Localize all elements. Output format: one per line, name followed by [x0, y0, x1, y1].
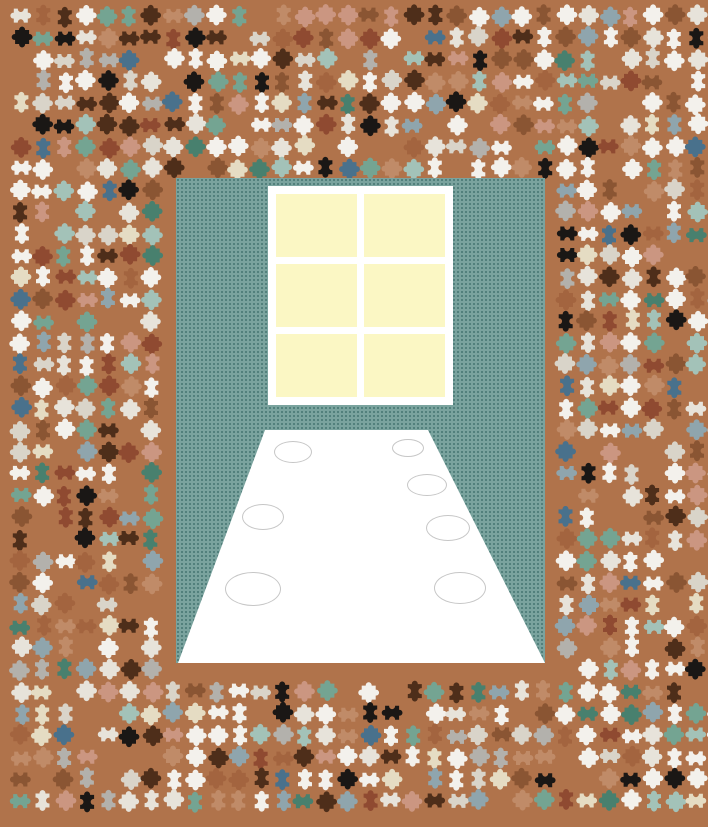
- puzzle-piece[interactable]: [490, 769, 511, 790]
- puzzle-piece[interactable]: [690, 288, 704, 309]
- puzzle-piece[interactable]: [57, 658, 71, 679]
- puzzle-piece[interactable]: [604, 659, 618, 680]
- puzzle-piece[interactable]: [163, 137, 184, 158]
- puzzle-piece[interactable]: [143, 551, 164, 572]
- puzzle-piece[interactable]: [15, 223, 29, 244]
- puzzle-piece[interactable]: [124, 268, 138, 289]
- puzzle-piece[interactable]: [185, 703, 206, 724]
- puzzle-piece[interactable]: [57, 355, 71, 376]
- puzzle-piece[interactable]: [316, 72, 337, 93]
- puzzle-piece[interactable]: [668, 748, 682, 769]
- puzzle-piece[interactable]: [600, 728, 621, 742]
- puzzle-piece[interactable]: [472, 768, 486, 789]
- puzzle-piece[interactable]: [667, 201, 681, 222]
- puzzle-piece[interactable]: [666, 268, 687, 289]
- puzzle-piece[interactable]: [140, 311, 161, 332]
- puzzle-piece[interactable]: [689, 593, 703, 614]
- puzzle-piece[interactable]: [272, 118, 293, 132]
- puzzle-piece[interactable]: [404, 51, 425, 65]
- puzzle-piece[interactable]: [143, 725, 164, 746]
- puzzle-piece[interactable]: [446, 139, 467, 153]
- puzzle-piece[interactable]: [425, 30, 446, 44]
- puzzle-piece[interactable]: [15, 704, 29, 725]
- puzzle-piece[interactable]: [492, 28, 513, 49]
- puzzle-piece[interactable]: [622, 729, 643, 743]
- puzzle-piece[interactable]: [99, 53, 120, 67]
- puzzle-piece[interactable]: [11, 137, 32, 158]
- puzzle-piece[interactable]: [557, 528, 578, 549]
- puzzle-piece[interactable]: [10, 550, 31, 571]
- puzzle-piece[interactable]: [492, 727, 513, 741]
- puzzle-piece[interactable]: [207, 157, 228, 178]
- puzzle-piece[interactable]: [255, 768, 269, 789]
- puzzle-piece[interactable]: [381, 93, 402, 114]
- puzzle-piece[interactable]: [77, 575, 98, 589]
- puzzle-piece[interactable]: [600, 76, 621, 90]
- puzzle-piece[interactable]: [577, 707, 598, 721]
- puzzle-piece[interactable]: [686, 530, 707, 551]
- puzzle-piece[interactable]: [273, 724, 294, 745]
- puzzle-piece[interactable]: [647, 309, 661, 330]
- puzzle-piece[interactable]: [275, 72, 289, 93]
- puzzle-piece[interactable]: [119, 116, 140, 137]
- puzzle-piece[interactable]: [576, 354, 597, 375]
- puzzle-piece[interactable]: [142, 574, 163, 595]
- puzzle-piece[interactable]: [621, 71, 642, 92]
- puzzle-piece[interactable]: [686, 228, 707, 242]
- puzzle-piece[interactable]: [55, 96, 76, 110]
- puzzle-piece[interactable]: [600, 332, 621, 353]
- puzzle-piece[interactable]: [557, 577, 578, 591]
- puzzle-piece[interactable]: [448, 794, 469, 808]
- puzzle-piece[interactable]: [121, 376, 142, 397]
- puzzle-piece[interactable]: [9, 660, 30, 681]
- puzzle-piece[interactable]: [76, 485, 97, 506]
- puzzle-piece[interactable]: [295, 7, 316, 28]
- puzzle-piece[interactable]: [164, 117, 185, 131]
- puzzle-piece[interactable]: [55, 32, 76, 46]
- puzzle-piece[interactable]: [77, 375, 98, 396]
- puzzle-piece[interactable]: [468, 26, 489, 47]
- puzzle-piece[interactable]: [560, 268, 574, 289]
- puzzle-piece[interactable]: [56, 554, 77, 568]
- puzzle-piece[interactable]: [556, 184, 577, 198]
- puzzle-piece[interactable]: [163, 728, 184, 742]
- puzzle-piece[interactable]: [647, 159, 661, 180]
- puzzle-piece[interactable]: [119, 92, 140, 113]
- puzzle-piece[interactable]: [166, 29, 180, 50]
- puzzle-piece[interactable]: [622, 247, 643, 268]
- puzzle-piece[interactable]: [384, 726, 398, 747]
- puzzle-piece[interactable]: [275, 769, 289, 790]
- puzzle-piece[interactable]: [75, 527, 96, 548]
- puzzle-piece[interactable]: [55, 619, 76, 633]
- puzzle-piece[interactable]: [555, 26, 576, 47]
- puzzle-piece[interactable]: [141, 290, 162, 311]
- puzzle-piece[interactable]: [685, 94, 706, 115]
- puzzle-piece[interactable]: [142, 157, 163, 178]
- puzzle-piece[interactable]: [557, 73, 578, 87]
- puzzle-piece[interactable]: [186, 725, 207, 746]
- puzzle-piece[interactable]: [599, 375, 620, 396]
- puzzle-piece[interactable]: [643, 4, 664, 25]
- puzzle-piece[interactable]: [76, 680, 97, 701]
- puzzle-piece[interactable]: [666, 309, 687, 330]
- puzzle-piece[interactable]: [469, 746, 490, 767]
- puzzle-piece[interactable]: [385, 116, 399, 137]
- puzzle-piece[interactable]: [511, 6, 532, 27]
- puzzle-piece[interactable]: [445, 707, 466, 721]
- puzzle-piece[interactable]: [98, 489, 119, 503]
- puzzle-piece[interactable]: [102, 463, 116, 484]
- puzzle-piece[interactable]: [427, 748, 441, 769]
- puzzle-piece[interactable]: [380, 793, 401, 807]
- puzzle-piece[interactable]: [56, 790, 77, 811]
- puzzle-piece[interactable]: [665, 289, 686, 310]
- puzzle-piece[interactable]: [36, 266, 50, 287]
- puzzle-piece[interactable]: [667, 114, 681, 135]
- puzzle-piece[interactable]: [13, 202, 27, 223]
- puzzle-piece[interactable]: [557, 4, 578, 25]
- puzzle-piece[interactable]: [228, 94, 249, 115]
- puzzle-piece[interactable]: [557, 248, 578, 262]
- puzzle-piece[interactable]: [685, 354, 706, 375]
- puzzle-piece[interactable]: [647, 791, 661, 812]
- puzzle-piece[interactable]: [32, 93, 53, 114]
- puzzle-piece[interactable]: [646, 48, 660, 69]
- puzzle-piece[interactable]: [10, 724, 31, 745]
- puzzle-piece[interactable]: [667, 222, 681, 243]
- puzzle-piece[interactable]: [620, 290, 641, 311]
- puzzle-piece[interactable]: [233, 703, 247, 724]
- puzzle-piece[interactable]: [578, 681, 599, 702]
- puzzle-piece[interactable]: [54, 120, 75, 134]
- puzzle-piece[interactable]: [228, 136, 249, 157]
- puzzle-piece[interactable]: [598, 401, 619, 415]
- puzzle-piece[interactable]: [600, 443, 621, 464]
- puzzle-piece[interactable]: [494, 748, 508, 769]
- puzzle-piece[interactable]: [581, 50, 595, 71]
- puzzle-piece[interactable]: [450, 27, 464, 48]
- puzzle-piece[interactable]: [449, 683, 463, 704]
- puzzle-piece[interactable]: [56, 375, 77, 396]
- puzzle-piece[interactable]: [99, 532, 120, 546]
- puzzle-piece[interactable]: [75, 136, 96, 157]
- puzzle-piece[interactable]: [33, 486, 54, 507]
- puzzle-piece[interactable]: [363, 50, 377, 71]
- puzzle-piece[interactable]: [31, 686, 52, 700]
- puzzle-piece[interactable]: [424, 682, 445, 703]
- puzzle-piece[interactable]: [665, 489, 686, 503]
- puzzle-piece[interactable]: [118, 531, 139, 545]
- puzzle-piece[interactable]: [358, 682, 379, 703]
- puzzle-piece[interactable]: [9, 621, 30, 635]
- puzzle-piece[interactable]: [404, 92, 425, 113]
- puzzle-piece[interactable]: [32, 444, 53, 458]
- puzzle-piece[interactable]: [599, 768, 620, 789]
- puzzle-piece[interactable]: [558, 94, 572, 115]
- puzzle-piece[interactable]: [54, 223, 75, 244]
- puzzle-piece[interactable]: [298, 93, 312, 114]
- puzzle-piece[interactable]: [14, 593, 28, 614]
- puzzle-piece[interactable]: [621, 397, 642, 418]
- puzzle-piece[interactable]: [622, 48, 643, 69]
- puzzle-piece[interactable]: [277, 790, 291, 811]
- puzzle-piece[interactable]: [143, 529, 157, 550]
- puzzle-piece[interactable]: [686, 794, 707, 808]
- puzzle-piece[interactable]: [211, 790, 225, 811]
- puzzle-piece[interactable]: [97, 598, 118, 612]
- puzzle-piece[interactable]: [622, 746, 643, 767]
- puzzle-piece[interactable]: [210, 93, 224, 114]
- puzzle-piece[interactable]: [10, 442, 31, 463]
- puzzle-piece[interactable]: [664, 50, 685, 71]
- puzzle-piece[interactable]: [665, 463, 686, 484]
- puzzle-piece[interactable]: [206, 137, 227, 158]
- puzzle-piece[interactable]: [621, 704, 642, 725]
- puzzle-piece[interactable]: [36, 5, 50, 26]
- puzzle-piece[interactable]: [271, 138, 292, 159]
- puzzle-piece[interactable]: [119, 726, 140, 747]
- puzzle-piece[interactable]: [364, 790, 378, 811]
- puzzle-piece[interactable]: [621, 685, 642, 699]
- puzzle-piece[interactable]: [208, 748, 229, 769]
- puzzle-piece[interactable]: [101, 288, 115, 309]
- puzzle-piece[interactable]: [233, 72, 247, 93]
- puzzle-piece[interactable]: [99, 659, 120, 680]
- puzzle-piece[interactable]: [557, 119, 578, 133]
- puzzle-piece[interactable]: [690, 179, 704, 200]
- puzzle-piece[interactable]: [557, 419, 578, 440]
- puzzle-piece[interactable]: [121, 353, 142, 374]
- puzzle-piece[interactable]: [98, 682, 119, 703]
- puzzle-piece[interactable]: [167, 769, 181, 790]
- puzzle-piece[interactable]: [166, 681, 180, 702]
- puzzle-piece[interactable]: [233, 725, 247, 746]
- puzzle-piece[interactable]: [227, 159, 248, 180]
- puzzle-piece[interactable]: [34, 357, 55, 371]
- puzzle-piece[interactable]: [665, 441, 686, 462]
- puzzle-piece[interactable]: [359, 93, 380, 114]
- puzzle-piece[interactable]: [406, 725, 420, 746]
- puzzle-piece[interactable]: [621, 135, 642, 156]
- puzzle-piece[interactable]: [642, 92, 663, 113]
- puzzle-piece[interactable]: [140, 420, 161, 441]
- puzzle-piece[interactable]: [143, 508, 164, 529]
- puzzle-piece[interactable]: [36, 790, 50, 811]
- puzzle-piece[interactable]: [687, 768, 708, 789]
- puzzle-piece[interactable]: [273, 29, 294, 50]
- puzzle-piece[interactable]: [10, 794, 31, 808]
- puzzle-piece[interactable]: [665, 639, 686, 660]
- puzzle-piece[interactable]: [576, 615, 597, 636]
- puzzle-piece[interactable]: [80, 245, 94, 266]
- puzzle-piece[interactable]: [556, 466, 577, 480]
- puzzle-piece[interactable]: [468, 789, 489, 810]
- puzzle-piece[interactable]: [581, 291, 595, 312]
- puzzle-piece[interactable]: [142, 201, 163, 222]
- puzzle-piece[interactable]: [691, 71, 705, 92]
- puzzle-piece[interactable]: [512, 30, 533, 44]
- puzzle-piece[interactable]: [11, 161, 32, 175]
- puzzle-piece[interactable]: [76, 658, 97, 679]
- puzzle-piece[interactable]: [382, 706, 403, 720]
- puzzle-piece[interactable]: [687, 202, 708, 223]
- puzzle-piece[interactable]: [32, 246, 53, 267]
- puzzle-piece[interactable]: [337, 137, 358, 158]
- puzzle-piece[interactable]: [250, 48, 271, 69]
- puzzle-piece[interactable]: [687, 507, 708, 528]
- puzzle-piece[interactable]: [556, 290, 577, 311]
- puzzle-piece[interactable]: [118, 179, 139, 200]
- puzzle-piece[interactable]: [513, 114, 534, 135]
- puzzle-piece[interactable]: [447, 115, 468, 136]
- puzzle-piece[interactable]: [53, 181, 74, 202]
- puzzle-piece[interactable]: [59, 636, 73, 657]
- puzzle-piece[interactable]: [620, 576, 641, 590]
- puzzle-piece[interactable]: [315, 4, 336, 25]
- puzzle-piece[interactable]: [625, 464, 639, 485]
- puzzle-piece[interactable]: [560, 375, 574, 396]
- puzzle-piece[interactable]: [140, 118, 161, 132]
- puzzle-piece[interactable]: [205, 115, 226, 136]
- puzzle-piece[interactable]: [358, 8, 379, 22]
- puzzle-piece[interactable]: [449, 770, 463, 791]
- puzzle-piece[interactable]: [555, 441, 576, 462]
- puzzle-piece[interactable]: [620, 598, 641, 612]
- puzzle-piece[interactable]: [102, 354, 116, 375]
- puzzle-piece[interactable]: [428, 157, 442, 178]
- puzzle-piece[interactable]: [255, 791, 269, 812]
- puzzle-board[interactable]: [176, 178, 545, 663]
- puzzle-piece[interactable]: [668, 530, 682, 551]
- puzzle-piece[interactable]: [232, 6, 246, 27]
- puzzle-piece[interactable]: [537, 27, 551, 48]
- puzzle-piece[interactable]: [275, 682, 289, 703]
- puzzle-piece[interactable]: [206, 768, 227, 789]
- puzzle-piece[interactable]: [472, 71, 486, 92]
- puzzle-piece[interactable]: [141, 72, 162, 93]
- puzzle-piece[interactable]: [271, 92, 292, 113]
- puzzle-piece[interactable]: [12, 506, 33, 527]
- puzzle-piece[interactable]: [31, 185, 52, 199]
- puzzle-piece[interactable]: [143, 682, 164, 703]
- puzzle-piece[interactable]: [55, 290, 76, 311]
- puzzle-piece[interactable]: [251, 138, 272, 159]
- puzzle-piece[interactable]: [339, 159, 360, 180]
- puzzle-piece[interactable]: [32, 573, 53, 594]
- puzzle-piece[interactable]: [537, 4, 551, 25]
- puzzle-piece[interactable]: [664, 179, 685, 200]
- puzzle-piece[interactable]: [600, 528, 621, 549]
- puzzle-piece[interactable]: [10, 289, 31, 310]
- puzzle-piece[interactable]: [10, 421, 31, 442]
- puzzle-piece[interactable]: [228, 770, 249, 791]
- puzzle-piece[interactable]: [99, 138, 120, 159]
- puzzle-piece[interactable]: [57, 333, 71, 354]
- puzzle-piece[interactable]: [382, 769, 403, 790]
- puzzle-piece[interactable]: [600, 202, 621, 223]
- puzzle-piece[interactable]: [667, 682, 681, 703]
- puzzle-piece[interactable]: [620, 224, 641, 245]
- puzzle-piece[interactable]: [599, 683, 620, 704]
- puzzle-piece[interactable]: [426, 703, 447, 724]
- puzzle-piece[interactable]: [121, 769, 142, 790]
- puzzle-piece[interactable]: [622, 268, 643, 289]
- puzzle-piece[interactable]: [665, 662, 686, 676]
- puzzle-piece[interactable]: [119, 225, 140, 246]
- puzzle-piece[interactable]: [603, 615, 617, 636]
- puzzle-piece[interactable]: [666, 353, 687, 374]
- puzzle-piece[interactable]: [99, 507, 120, 528]
- puzzle-piece[interactable]: [577, 93, 598, 114]
- puzzle-piece[interactable]: [294, 681, 315, 702]
- puzzle-piece[interactable]: [598, 356, 619, 377]
- puzzle-piece[interactable]: [118, 619, 139, 633]
- puzzle-piece[interactable]: [667, 92, 681, 113]
- puzzle-piece[interactable]: [35, 463, 49, 484]
- puzzle-piece[interactable]: [644, 620, 665, 634]
- puzzle-piece[interactable]: [359, 773, 380, 787]
- puzzle-piece[interactable]: [59, 507, 73, 528]
- puzzle-piece[interactable]: [98, 28, 119, 49]
- puzzle-piece[interactable]: [145, 790, 159, 811]
- puzzle-piece[interactable]: [363, 72, 377, 93]
- puzzle-piece[interactable]: [188, 792, 202, 813]
- puzzle-piece[interactable]: [666, 572, 687, 593]
- puzzle-piece[interactable]: [625, 617, 639, 638]
- puzzle-piece[interactable]: [578, 26, 599, 47]
- puzzle-piece[interactable]: [577, 528, 598, 549]
- puzzle-piece[interactable]: [98, 423, 119, 437]
- puzzle-piece[interactable]: [142, 245, 163, 266]
- puzzle-piece[interactable]: [599, 790, 620, 811]
- puzzle-piece[interactable]: [535, 750, 556, 764]
- puzzle-piece[interactable]: [645, 595, 659, 616]
- puzzle-piece[interactable]: [119, 202, 140, 223]
- puzzle-piece[interactable]: [75, 467, 96, 481]
- puzzle-piece[interactable]: [599, 572, 620, 593]
- puzzle-piece[interactable]: [206, 30, 227, 44]
- puzzle-piece[interactable]: [576, 551, 597, 572]
- puzzle-piece[interactable]: [37, 70, 51, 91]
- puzzle-piece[interactable]: [643, 244, 664, 265]
- puzzle-piece[interactable]: [645, 485, 659, 506]
- puzzle-piece[interactable]: [10, 773, 31, 787]
- puzzle-piece[interactable]: [600, 423, 621, 437]
- puzzle-piece[interactable]: [361, 725, 382, 746]
- puzzle-piece[interactable]: [688, 113, 708, 134]
- puzzle-piece[interactable]: [598, 139, 619, 153]
- puzzle-piece[interactable]: [491, 141, 512, 155]
- puzzle-piece[interactable]: [338, 5, 359, 26]
- puzzle-piece[interactable]: [77, 271, 98, 285]
- puzzle-piece[interactable]: [690, 440, 704, 461]
- puzzle-piece[interactable]: [577, 244, 598, 265]
- puzzle-piece[interactable]: [446, 91, 467, 112]
- puzzle-piece[interactable]: [55, 419, 76, 440]
- puzzle-piece[interactable]: [559, 311, 573, 332]
- puzzle-piece[interactable]: [666, 791, 687, 812]
- puzzle-piece[interactable]: [664, 724, 685, 745]
- puzzle-piece[interactable]: [360, 158, 381, 179]
- puzzle-piece[interactable]: [315, 750, 336, 764]
- puzzle-piece[interactable]: [576, 310, 597, 331]
- puzzle-piece[interactable]: [118, 442, 139, 463]
- puzzle-piece[interactable]: [643, 768, 664, 789]
- puzzle-piece[interactable]: [99, 93, 120, 114]
- puzzle-piece[interactable]: [75, 552, 96, 573]
